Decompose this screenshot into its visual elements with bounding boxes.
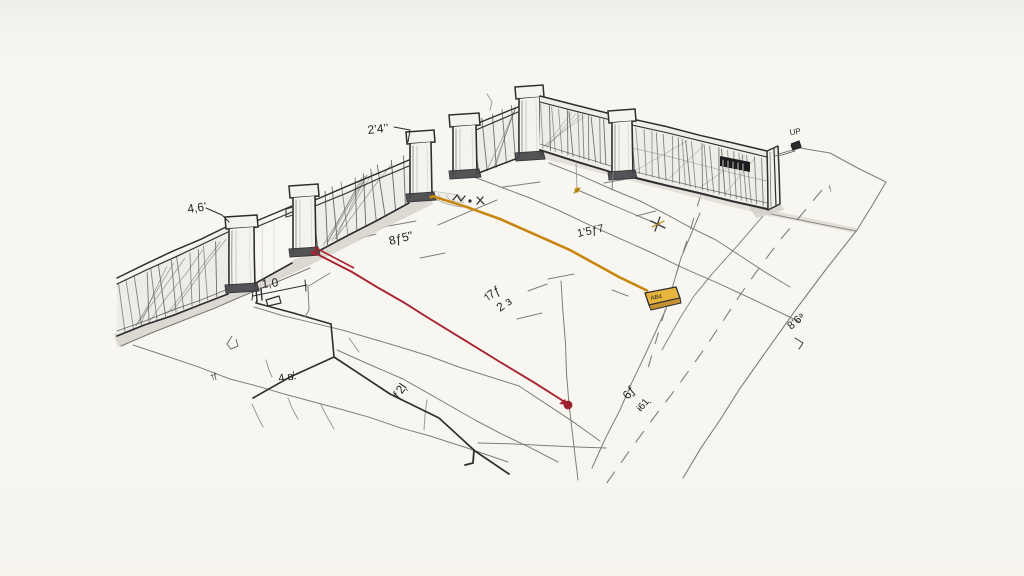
svg-text:UP: UP [789,127,801,137]
svg-text:1,0: 1,0 [261,275,279,291]
svg-text:4,6’: 4,6’ [186,199,207,216]
svg-text:2’4’’: 2’4’’ [367,121,389,137]
